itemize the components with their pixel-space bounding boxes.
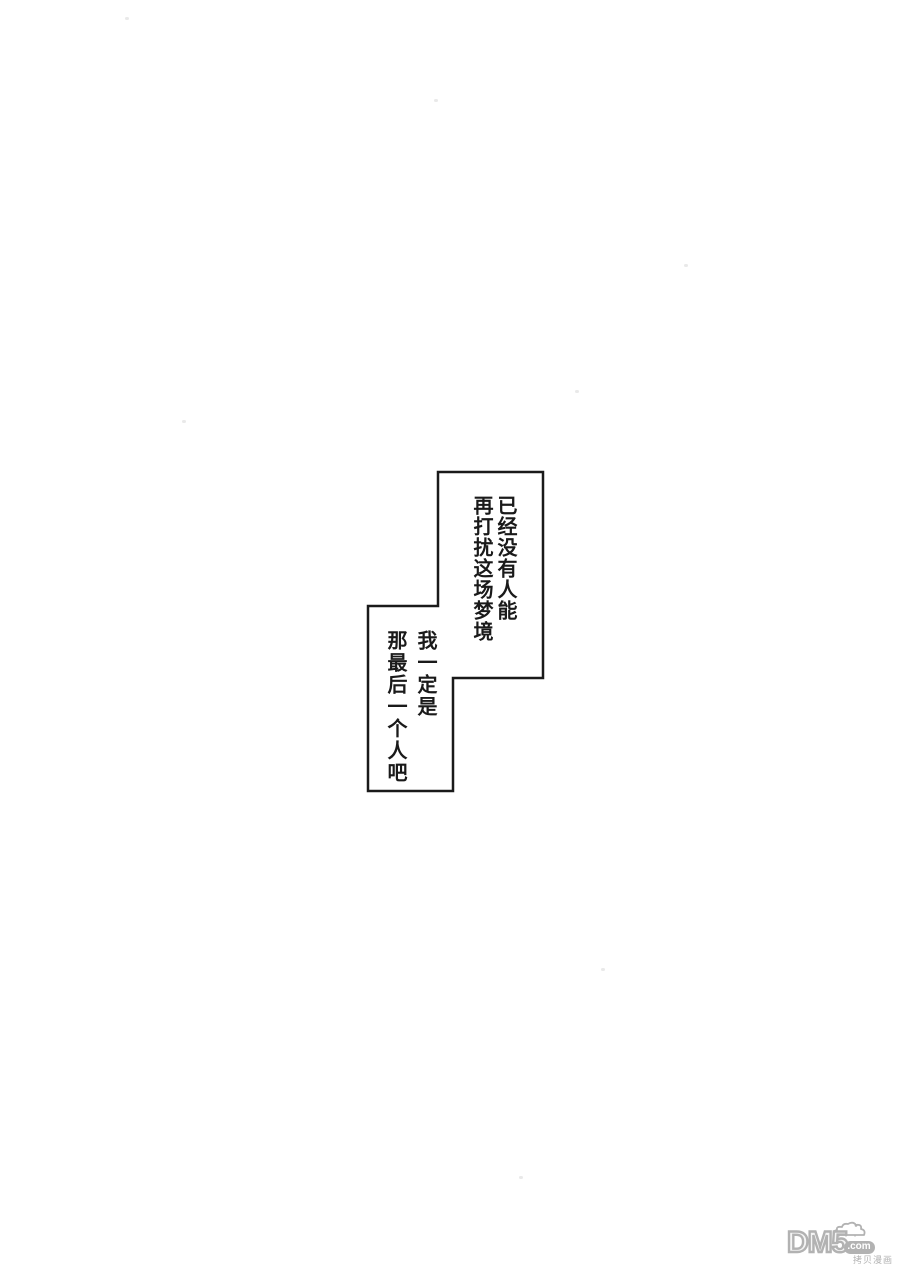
dm5-logo: DM5 .com — [787, 1232, 875, 1255]
noise-speck — [434, 99, 438, 102]
dotcom-badge: .com — [844, 1241, 874, 1254]
noise-speck — [684, 264, 688, 267]
dm5-logo-text: DM5 — [787, 1232, 847, 1255]
noise-speck — [182, 420, 186, 423]
speech-text-top: 已经没有人能 再打扰这场梦境 — [469, 495, 517, 642]
speech-line: 我一定是 — [410, 630, 440, 784]
noise-speck — [575, 390, 579, 393]
manga-page: 已经没有人能 再打扰这场梦境 我一定是 那最后一个人吧 DM5 .com 拷贝漫… — [0, 0, 900, 1270]
speech-line: 再打扰这场梦境 — [469, 495, 493, 642]
watermark: DM5 .com 拷贝漫画 — [777, 1224, 895, 1264]
watermark-tagline: 拷贝漫画 — [853, 1256, 893, 1265]
noise-speck — [601, 968, 605, 971]
noise-speck — [125, 17, 129, 20]
speech-box-outline — [0, 0, 900, 1270]
noise-speck — [519, 1176, 523, 1179]
speech-line: 那最后一个人吧 — [380, 630, 410, 784]
speech-text-bottom: 我一定是 那最后一个人吧 — [380, 630, 440, 784]
speech-line: 已经没有人能 — [493, 495, 517, 642]
